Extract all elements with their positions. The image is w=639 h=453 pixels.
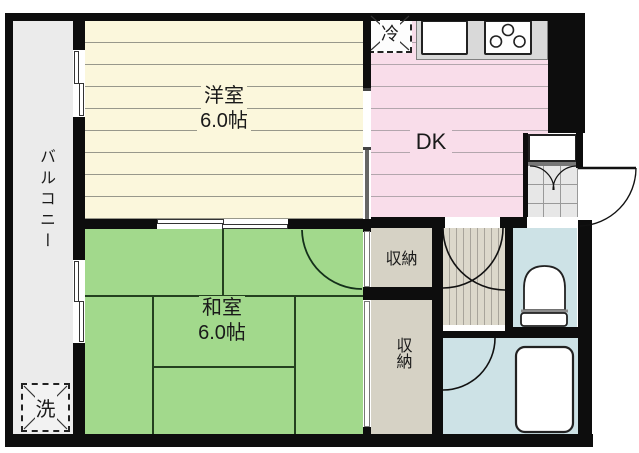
hallway (443, 228, 505, 325)
floorplan-canvas: バルコニー 洗 洋室 6.0帖 DK 冷 和室 6.0帖 収納 収納 (0, 0, 639, 453)
sliding-door-pane (157, 219, 224, 224)
wall-balcony (73, 343, 85, 434)
window-pane (74, 51, 79, 84)
closet-upper-label: 収納 (385, 245, 417, 269)
western-room-size: 6.0帖 (197, 109, 251, 134)
wall-balcony (73, 21, 85, 50)
wall-dk-genkan (523, 133, 528, 222)
western-room-label: 洋室 6.0帖 (154, 84, 294, 134)
japanese-room-size: 6.0帖 (195, 321, 249, 346)
laundry-label: 洗 (35, 393, 57, 422)
wall-outer-right-stub (576, 133, 583, 168)
dk-label: DK (410, 129, 453, 155)
balcony-label: バルコニー (35, 148, 55, 298)
window-pane (79, 301, 84, 342)
tatami-line (222, 229, 224, 296)
wall-outer-right-upper (548, 13, 585, 133)
shoe-cabinet (528, 134, 577, 162)
laundry-label-wrap: 洗 (21, 383, 70, 432)
kitchen-stove (484, 20, 532, 55)
wall-dk-south (500, 217, 527, 228)
balcony-label-wrap: バルコニー (29, 148, 61, 298)
wall-hallway-bath (432, 331, 505, 338)
closet-lower-label-wrap: 収納 (371, 337, 432, 399)
western-room-name: 洋室 (201, 84, 247, 109)
dk-label-wrap: DK (396, 129, 466, 155)
japanese-room-label: 和室 6.0帖 (152, 296, 292, 346)
opening-genkan (527, 217, 578, 228)
wall-closet-hallway (432, 219, 443, 434)
window-pane (74, 261, 79, 302)
sliding-door-pane (222, 224, 288, 229)
wall-toilet-bath (505, 327, 592, 338)
window-pane (79, 83, 84, 116)
wall-outer-bottom (5, 434, 593, 447)
closet-lower-door (364, 301, 370, 427)
closet-upper-label-wrap: 収納 (371, 245, 432, 269)
opening-dk-hallway (445, 217, 500, 228)
wall-balcony (73, 117, 85, 260)
wall-western-dk-thin (365, 150, 369, 219)
entrance-genkan (527, 166, 578, 222)
tatami-line (152, 366, 296, 368)
closet-lower-label: 収納 (391, 337, 413, 399)
opening-hallway-bath (443, 325, 503, 331)
closet-upper-door (364, 231, 370, 287)
tatami-line (294, 296, 296, 434)
fridge-label-wrap: 冷 (368, 13, 412, 53)
wall-outer-top (5, 13, 585, 21)
bathroom (443, 338, 578, 434)
kitchen-sink (421, 20, 468, 55)
fridge-label: 冷 (380, 20, 400, 46)
japanese-room-name: 和室 (199, 296, 245, 321)
sliding-door-western-dk (363, 88, 371, 150)
entrance-step (527, 162, 578, 166)
toilet-room (513, 228, 577, 327)
wall-outer-left (5, 13, 13, 447)
wall-dk-south (371, 217, 445, 228)
wall-hallway-toilet (505, 219, 513, 338)
wall-japanese-closet (363, 427, 371, 434)
wall-western-japanese (85, 219, 157, 229)
wall-closet-divider (363, 287, 432, 300)
entrance-door-arc (580, 168, 636, 226)
wall-western-japanese (288, 219, 363, 229)
